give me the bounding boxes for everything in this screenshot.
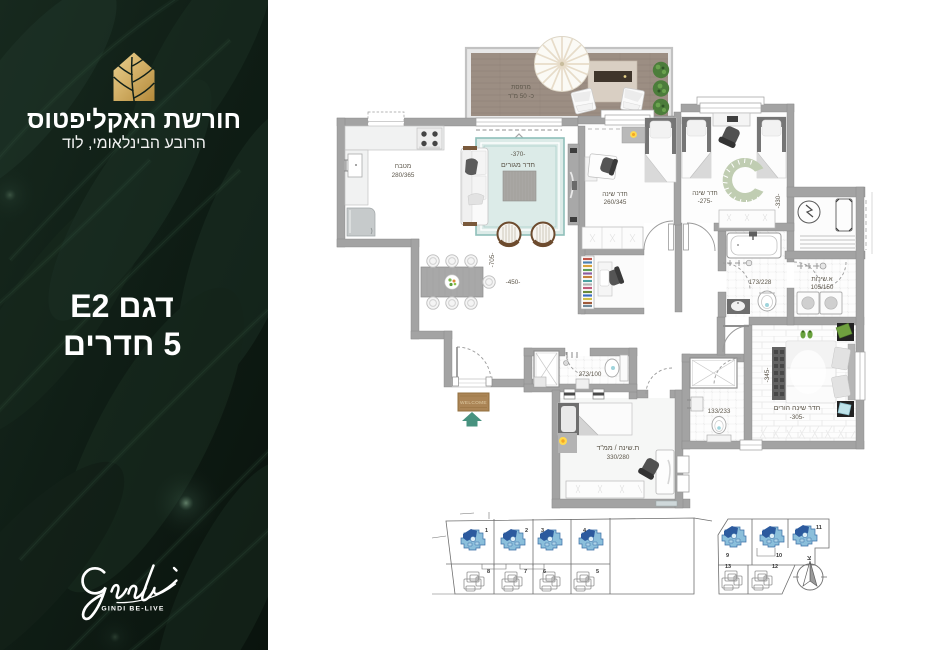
svg-text:-450-: -450- [506, 279, 521, 286]
svg-text:105/150: 105/150 [811, 284, 834, 291]
svg-text:הרובע הבינלאומי, לוד: הרובע הבינלאומי, לוד [62, 134, 206, 152]
svg-text:12: 12 [772, 564, 778, 570]
svg-text:133/233: 133/233 [708, 408, 731, 415]
svg-text:א.שירות: א.שירות [811, 276, 832, 283]
svg-text:-330-: -330- [775, 194, 782, 209]
svg-text:WELCOME: WELCOME [460, 400, 487, 406]
svg-text:5: 5 [596, 569, 599, 575]
svg-text:260/345: 260/345 [604, 199, 627, 206]
svg-text:11: 11 [816, 525, 822, 531]
svg-text:1: 1 [485, 528, 488, 534]
svg-text:מרפסת: מרפסת [511, 84, 531, 91]
svg-text:כ- 50 מ"ר: כ- 50 מ"ר [508, 93, 534, 100]
svg-text:10: 10 [776, 553, 782, 559]
svg-text:2: 2 [525, 528, 528, 534]
svg-text:-275-: -275- [698, 198, 713, 205]
svg-text:-705-: -705- [489, 253, 496, 268]
svg-text:-345-: -345- [764, 368, 771, 383]
svg-text:173/228: 173/228 [749, 279, 772, 286]
svg-text:דגם E2: דגם E2 [70, 288, 173, 324]
svg-text:GINDI BE-LIVE: GINDI BE-LIVE [101, 606, 164, 613]
svg-text:280/365: 280/365 [392, 172, 415, 179]
svg-text:חדר שינה: חדר שינה [692, 190, 717, 197]
svg-text:13: 13 [725, 564, 731, 570]
svg-text:7: 7 [524, 569, 527, 575]
svg-text:חורשת האקליפטוס: חורשת האקליפטוס [27, 106, 241, 134]
svg-text:-370-: -370- [511, 151, 526, 158]
svg-text:3: 3 [541, 528, 544, 534]
svg-text:5 חדרים: 5 חדרים [63, 326, 181, 362]
svg-text:9: 9 [726, 553, 729, 559]
svg-text:-305-: -305- [790, 414, 805, 421]
svg-text:330/280: 330/280 [607, 454, 630, 461]
svg-text:273/100: 273/100 [579, 371, 602, 378]
svg-text:חדר שינה: חדר שינה [602, 191, 627, 198]
svg-text:צ: צ [807, 555, 811, 562]
svg-text:חדר שינה הורים: חדר שינה הורים [774, 405, 821, 412]
svg-text:6: 6 [543, 569, 546, 575]
svg-text:ת.שינה / ממ"ד: ת.שינה / ממ"ד [597, 445, 640, 452]
svg-text:חדר מגורים: חדר מגורים [501, 162, 535, 169]
svg-text:מטבח: מטבח [395, 163, 411, 170]
svg-text:8: 8 [487, 569, 490, 575]
